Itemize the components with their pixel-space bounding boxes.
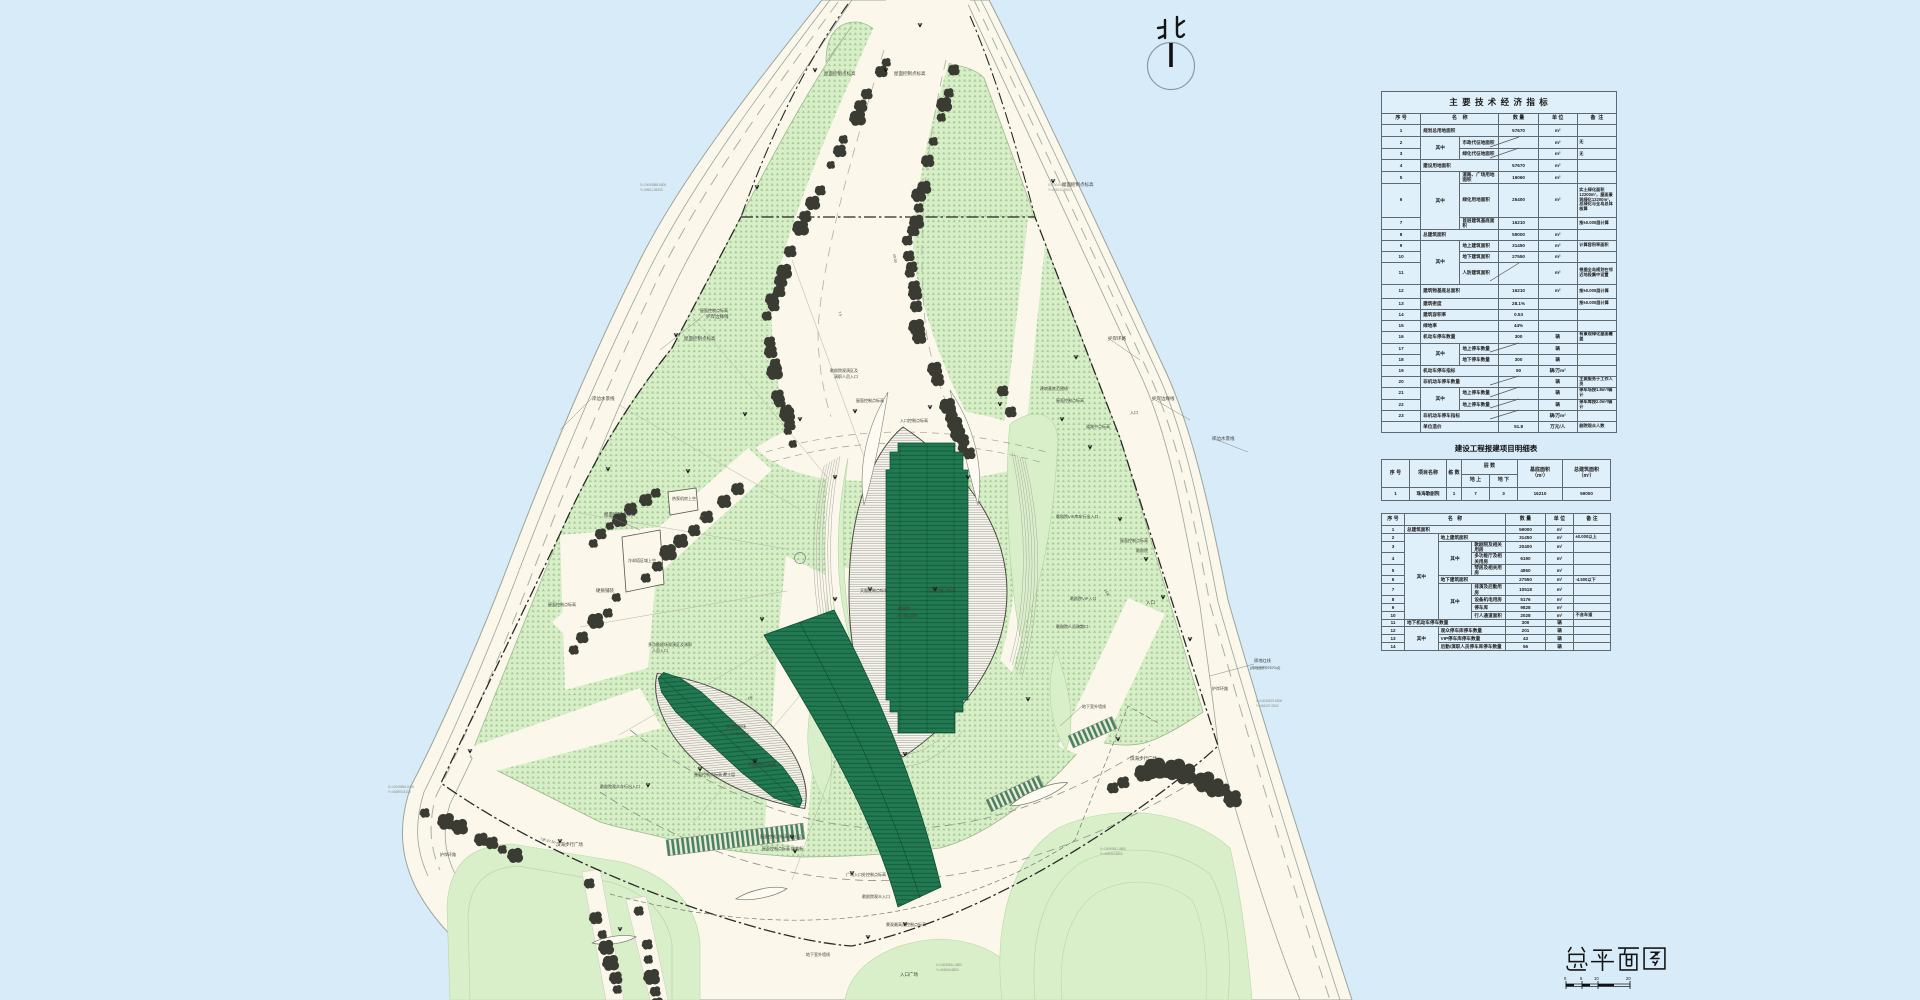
svg-text:地下室外墙线: 地下室外墙线: [1082, 703, 1106, 709]
svg-text:地下室外墙线: 地下室外墙线: [806, 951, 830, 957]
svg-text:歌剧院VIP入口: 歌剧院VIP入口: [1070, 595, 1096, 601]
svg-text:滨海步行广场: 滨海步行广场: [556, 841, 583, 848]
svg-text:H=55.40M: H=55.40M: [730, 731, 749, 736]
svg-text:Y=404064.6800: Y=404064.6800: [1100, 852, 1123, 856]
svg-text:广场入口处控制点标高: 广场入口处控制点标高: [846, 871, 886, 877]
svg-text:Y=404064.6800: Y=404064.6800: [936, 968, 959, 972]
svg-text:岸边水景线: 岸边水景线: [592, 395, 615, 402]
svg-text:入口控制点标高: 入口控制点标高: [900, 417, 928, 423]
svg-text:20: 20: [1626, 976, 1631, 981]
svg-text:歌剧院VIP库车行出入口: 歌剧院VIP库车行出入口: [1056, 513, 1098, 519]
svg-text:H=90.00M: H=90.00M: [898, 613, 918, 618]
svg-text:只爬控制点标高: 只爬控制点标高: [928, 587, 956, 593]
svg-text:天窗控制点标高: 天窗控制点标高: [860, 587, 888, 593]
svg-text:护岸边缘线: 护岸边缘线: [1152, 395, 1175, 402]
svg-text:人员入口: 人员入口: [652, 647, 668, 653]
svg-text:屋面控制点标高: 屋面控制点标高: [1120, 537, 1148, 543]
svg-text:屋面控制点标高: 屋面控制点标高: [1056, 397, 1084, 403]
svg-text:X=10049679.8500: X=10049679.8500: [1256, 699, 1282, 703]
svg-text:热泵机房上空: 热泵机房上空: [672, 495, 696, 501]
svg-text:滨海步行广场: 滨海步行广场: [1130, 755, 1157, 762]
svg-text:屋面控制点标高: 屋面控制点标高: [684, 335, 716, 342]
svg-text:多功能剧场: 多功能剧场: [726, 723, 746, 729]
svg-text:周地红线: 周地红线: [1254, 657, 1272, 664]
svg-text:屋面控制点标高: 屋面控制点标高: [604, 511, 636, 518]
svg-text:入口广场: 入口广场: [900, 971, 918, 978]
svg-text:景观最高点控制点标高: 景观最高点控制点标高: [886, 921, 926, 927]
svg-text:屋面控制点标高: 屋面控制点标高: [700, 307, 728, 313]
svg-text:歌剧院观众入口: 歌剧院观众入口: [862, 893, 890, 899]
svg-text:歌剧院观众车行出入口: 歌剧院观众车行出入口: [600, 783, 640, 789]
svg-text:建筑基底范围线: 建筑基底范围线: [1040, 385, 1068, 391]
svg-text:屋面控制点标高: 屋面控制点标高: [894, 70, 926, 77]
svg-text:X=10049811.4800: X=10049811.4800: [936, 963, 962, 967]
svg-text:冷却塔区域上空: 冷却塔区域上空: [628, 557, 656, 563]
svg-text:X=10049811.4800: X=10049811.4800: [1100, 847, 1126, 851]
svg-text:入口: 入口: [1130, 410, 1138, 415]
svg-text:歌剧院: 歌剧院: [898, 605, 911, 612]
svg-text:硬质铺装: 硬质铺装: [596, 587, 614, 594]
svg-text:屋面控制点标高 覆土层: 屋面控制点标高 覆土层: [694, 771, 735, 777]
svg-text:歌剧院人员疏散口: 歌剧院人员疏散口: [1056, 623, 1088, 629]
svg-text:Y=434197.2500: Y=434197.2500: [1256, 704, 1279, 708]
svg-text:屋面控制点标高: 屋面控制点标高: [824, 70, 856, 77]
svg-text:X=10049885.5800: X=10049885.5800: [1048, 183, 1074, 187]
svg-text:护岸环路: 护岸环路: [440, 851, 456, 857]
svg-text:歌剧院: 歌剧院: [1136, 547, 1148, 553]
svg-text:Y=40501.06300: Y=40501.06300: [640, 188, 663, 192]
svg-text:岸边水景线: 岸边水景线: [1212, 435, 1235, 442]
svg-text:护岸边缘线: 护岸边缘线: [706, 313, 729, 320]
svg-text:10: 10: [1594, 976, 1599, 981]
svg-text:屋面控制点标高 结构板: 屋面控制点标高 结构板: [762, 845, 803, 851]
svg-text:X=10049854.0400: X=10049854.0400: [388, 785, 414, 789]
svg-text:多功能剧场观演区及演职: 多功能剧场观演区及演职: [648, 641, 692, 647]
svg-text:Y=434013.3500: Y=434013.3500: [1048, 188, 1071, 192]
svg-text:Y=403893.8100: Y=403893.8100: [388, 790, 411, 794]
svg-text:演职人员入口: 演职人员入口: [834, 373, 858, 379]
svg-text:护岸环路: 护岸环路: [1108, 335, 1126, 342]
svg-text:天窗控制点标高: 天窗控制点标高: [748, 761, 776, 767]
svg-text:屋面控制点标高: 屋面控制点标高: [548, 601, 576, 607]
svg-text:歌剧院观演区及: 歌剧院观演区及: [830, 367, 858, 373]
svg-text:道路中点标高: 道路中点标高: [1086, 423, 1110, 429]
svg-text:屋面控制点标高 覆土层: 屋面控制点标高 覆土层: [760, 833, 801, 839]
svg-text:护岸环路: 护岸环路: [1212, 685, 1228, 691]
svg-text:屋面控制点标高: 屋面控制点标高: [856, 397, 884, 403]
svg-text:(用地面积57670㎡): (用地面积57670㎡): [1250, 665, 1280, 670]
svg-text:X=10049885.5800: X=10049885.5800: [640, 183, 666, 187]
